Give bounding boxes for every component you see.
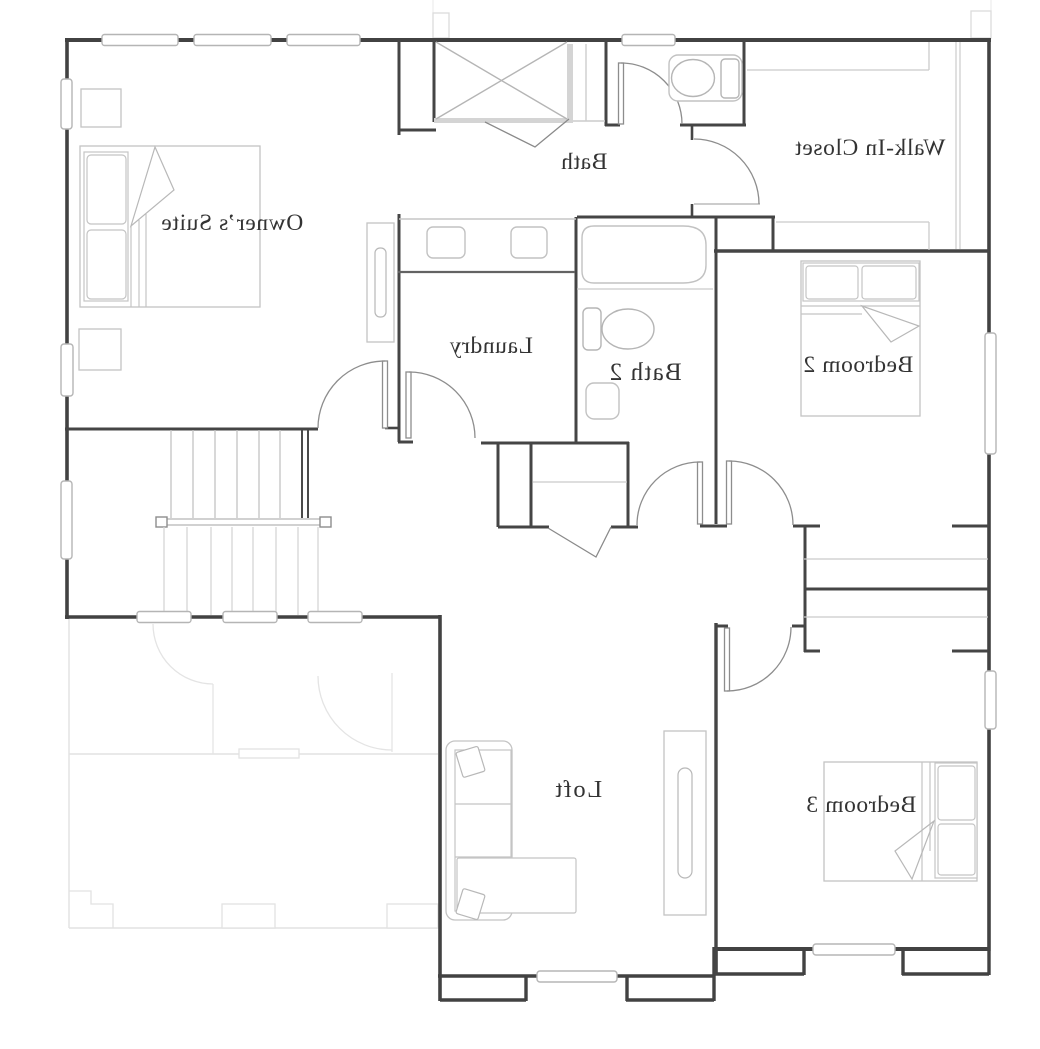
svg-text:Bath 2: Bath 2 — [608, 359, 681, 386]
svg-text:Owner’s Suite: Owner’s Suite — [161, 210, 303, 236]
svg-text:Loft: Loft — [554, 776, 602, 803]
svg-text:Bath: Bath — [561, 149, 608, 175]
svg-text:Laundry: Laundry — [449, 333, 533, 359]
svg-text:Bedroom 2: Bedroom 2 — [803, 352, 914, 378]
svg-text:Walk-In Closet: Walk-In Closet — [795, 135, 946, 161]
svg-text:Bedroom 3: Bedroom 3 — [806, 792, 917, 818]
